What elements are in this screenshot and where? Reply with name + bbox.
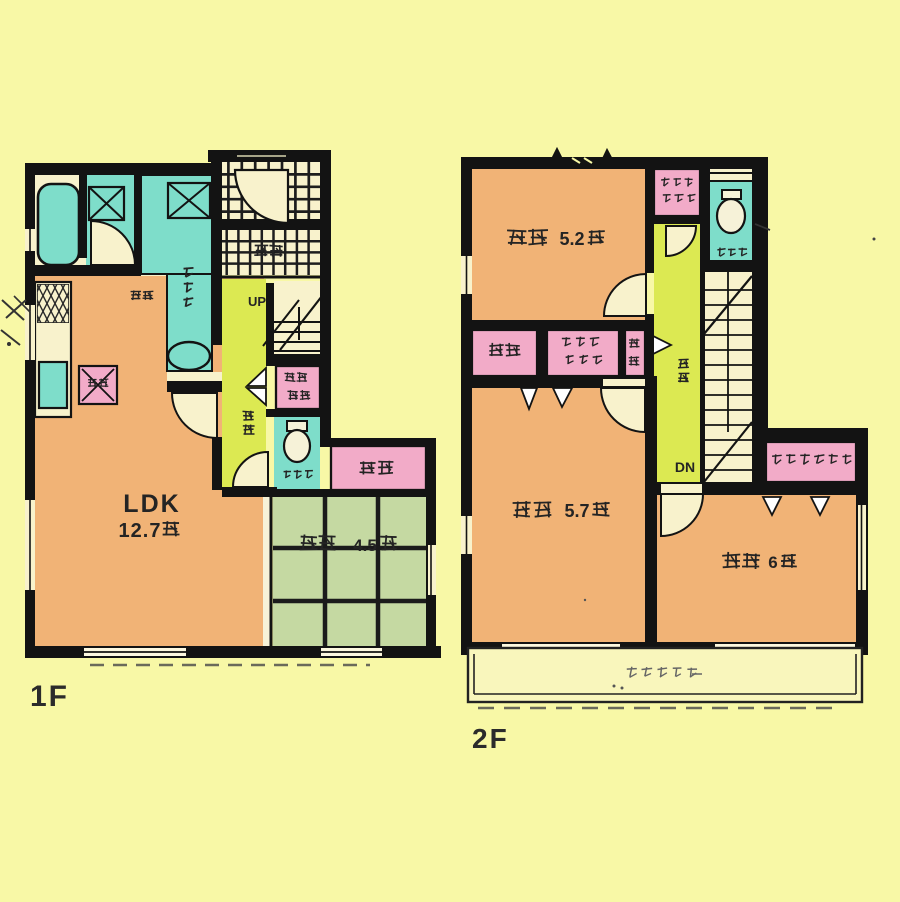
svg-text:5.2: 5.2: [559, 229, 584, 249]
svg-text:5.7: 5.7: [564, 501, 589, 521]
svg-text:UP: UP: [248, 294, 266, 309]
svg-text:12.7: 12.7: [119, 520, 162, 542]
svg-text:6: 6: [768, 553, 777, 572]
svg-text:1F: 1F: [30, 680, 69, 713]
svg-text:DN: DN: [675, 459, 695, 475]
svg-text:2F: 2F: [472, 723, 509, 754]
svg-text:LDK: LDK: [123, 490, 180, 518]
svg-text:4.5: 4.5: [353, 536, 377, 555]
